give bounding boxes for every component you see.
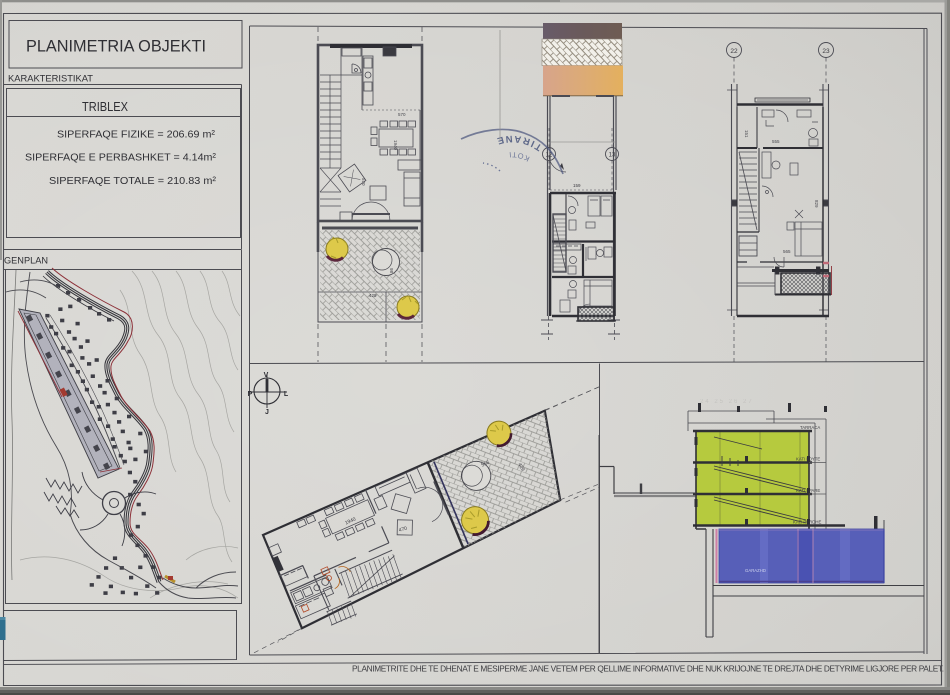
svg-text:L: L <box>284 391 289 398</box>
svg-text:570: 570 <box>398 112 406 117</box>
svg-text:13: 13 <box>609 153 616 159</box>
svg-text:TRIBLEX: TRIBLEX <box>82 100 129 114</box>
svg-text:555: 555 <box>772 139 780 144</box>
svg-text:KARAKTERISTIKAT: KARAKTERISTIKAT <box>8 74 93 85</box>
svg-text:429: 429 <box>369 293 377 298</box>
svg-text:GENPLAN: GENPLAN <box>4 256 48 267</box>
svg-text:470: 470 <box>398 526 408 534</box>
svg-text:829: 829 <box>814 200 819 208</box>
svg-text:PLANIMETRITE DHE TE DHENAT E M: PLANIMETRITE DHE TE DHENAT E MESIPERME J… <box>352 664 944 674</box>
svg-text:565: 565 <box>783 249 791 254</box>
svg-text:151: 151 <box>744 130 749 138</box>
svg-text:KOTI: KOTI <box>507 150 531 163</box>
svg-text:V: V <box>264 372 269 379</box>
svg-text:570: 570 <box>361 178 366 186</box>
svg-text:159: 159 <box>573 183 581 188</box>
svg-text:24 25 26 27: 24 25 26 27 <box>700 399 754 405</box>
svg-text:SIPERFAQE E PERBASHKET = 4.: SIPERFAQE E PERBASHKET = 4.14m² <box>25 153 217 164</box>
svg-text:TIRANE: TIRANE <box>494 133 544 153</box>
svg-text:GARAZHD: GARAZHD <box>745 568 766 573</box>
svg-text:P: P <box>248 391 253 398</box>
svg-text:TARRACA: TARRACA <box>800 425 820 430</box>
svg-text:J: J <box>265 409 269 416</box>
svg-text:1940: 1940 <box>344 516 357 526</box>
svg-text:1940: 1940 <box>393 140 398 151</box>
svg-text:SIPERFAQE FIZIKE = 206.69 m: SIPERFAQE FIZIKE = 206.69 m² <box>57 130 216 141</box>
svg-text:SIPERFAQE TOTALE = 210.83: SIPERFAQE TOTALE = 210.83 m² <box>49 176 217 187</box>
svg-text:PLANIMETRIA OBJEKTI: PLANIMETRIA OBJEKTI <box>26 38 206 56</box>
svg-text:23: 23 <box>822 48 830 55</box>
svg-text:98: 98 <box>389 268 394 274</box>
svg-text:22: 22 <box>730 48 738 55</box>
